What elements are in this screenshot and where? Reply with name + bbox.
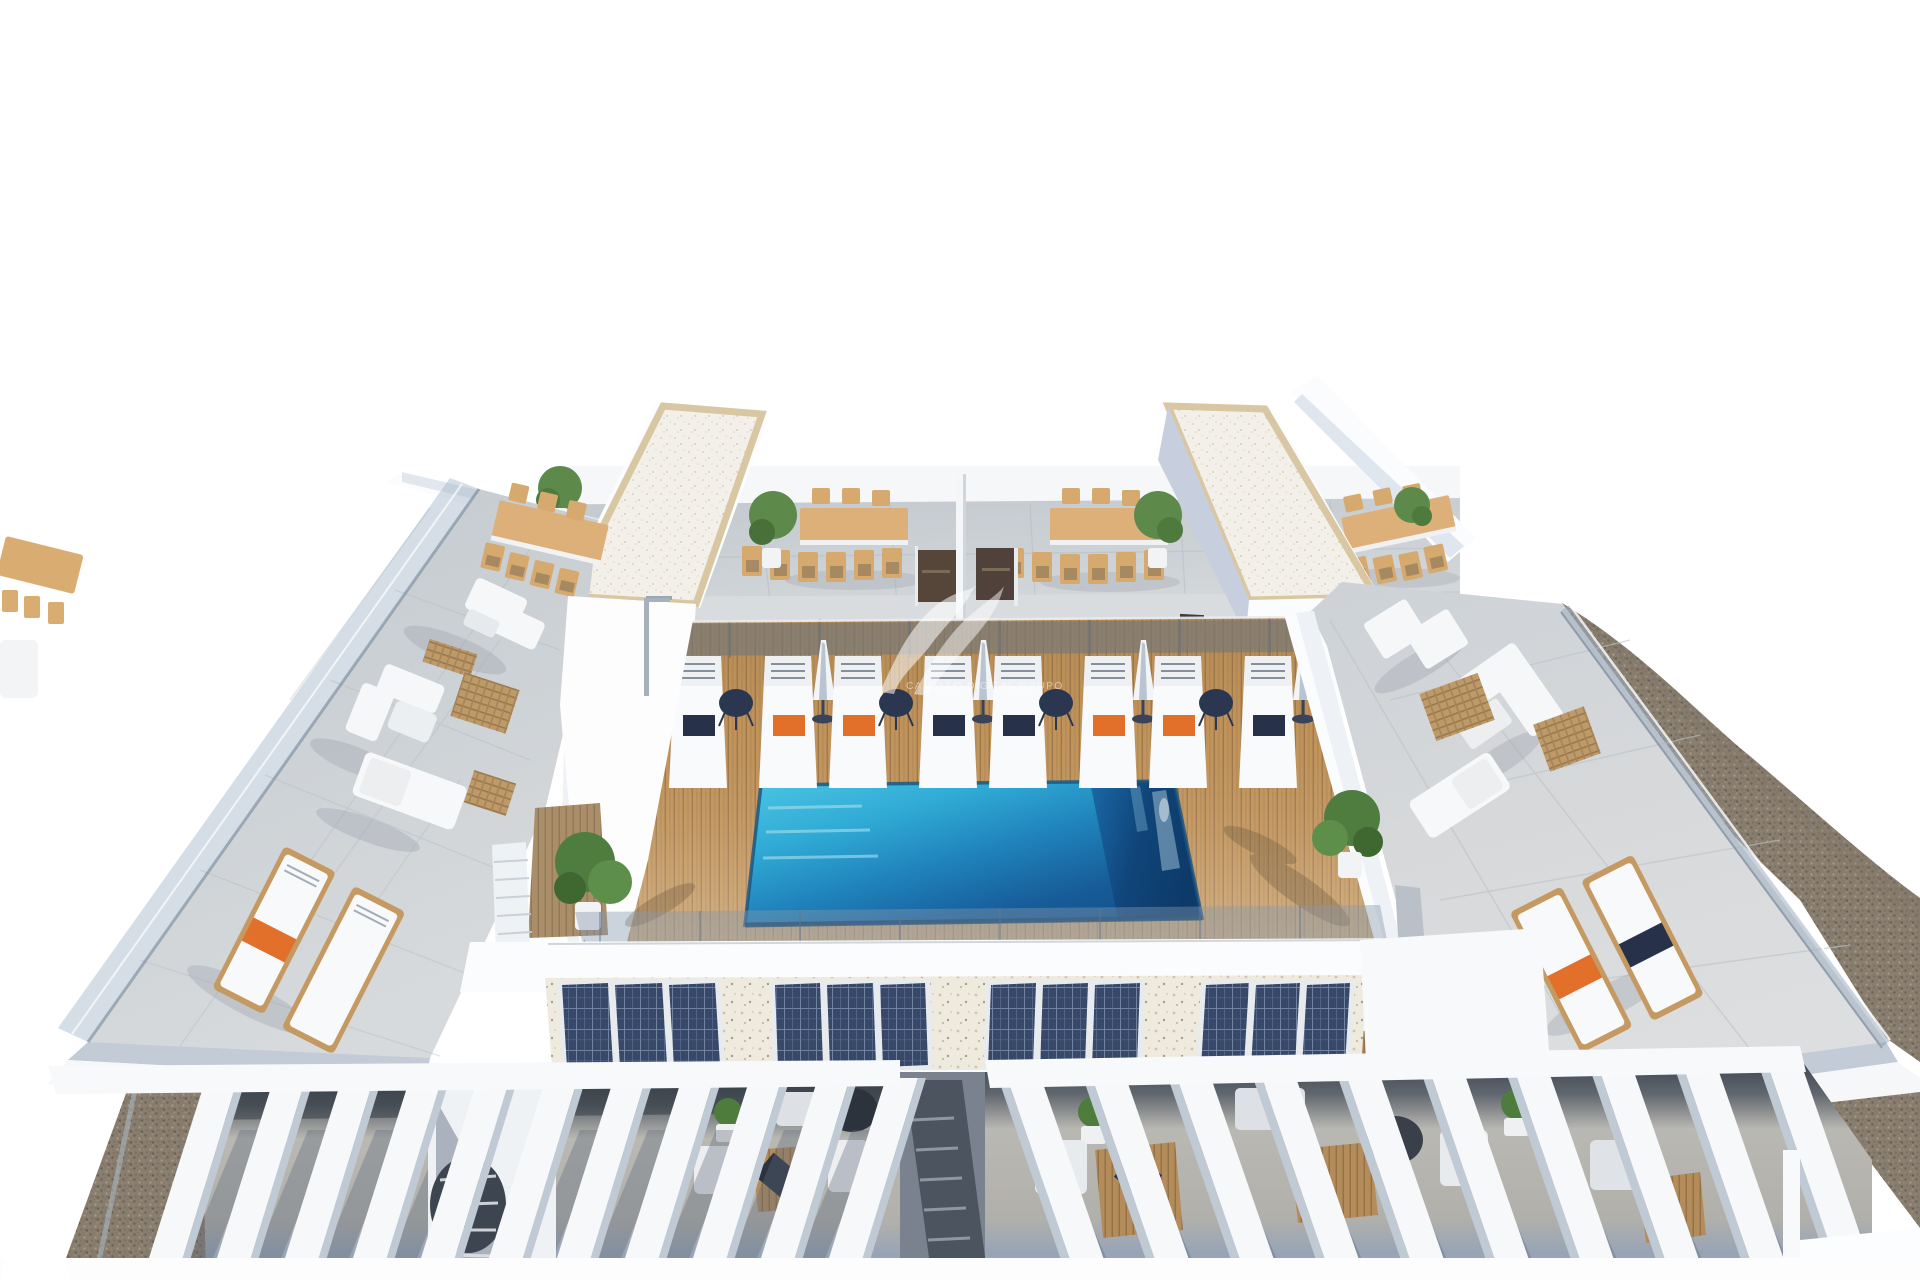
svg-text:CABALLO DIGITAL GRUPO: CABALLO DIGITAL GRUPO	[906, 680, 1064, 692]
